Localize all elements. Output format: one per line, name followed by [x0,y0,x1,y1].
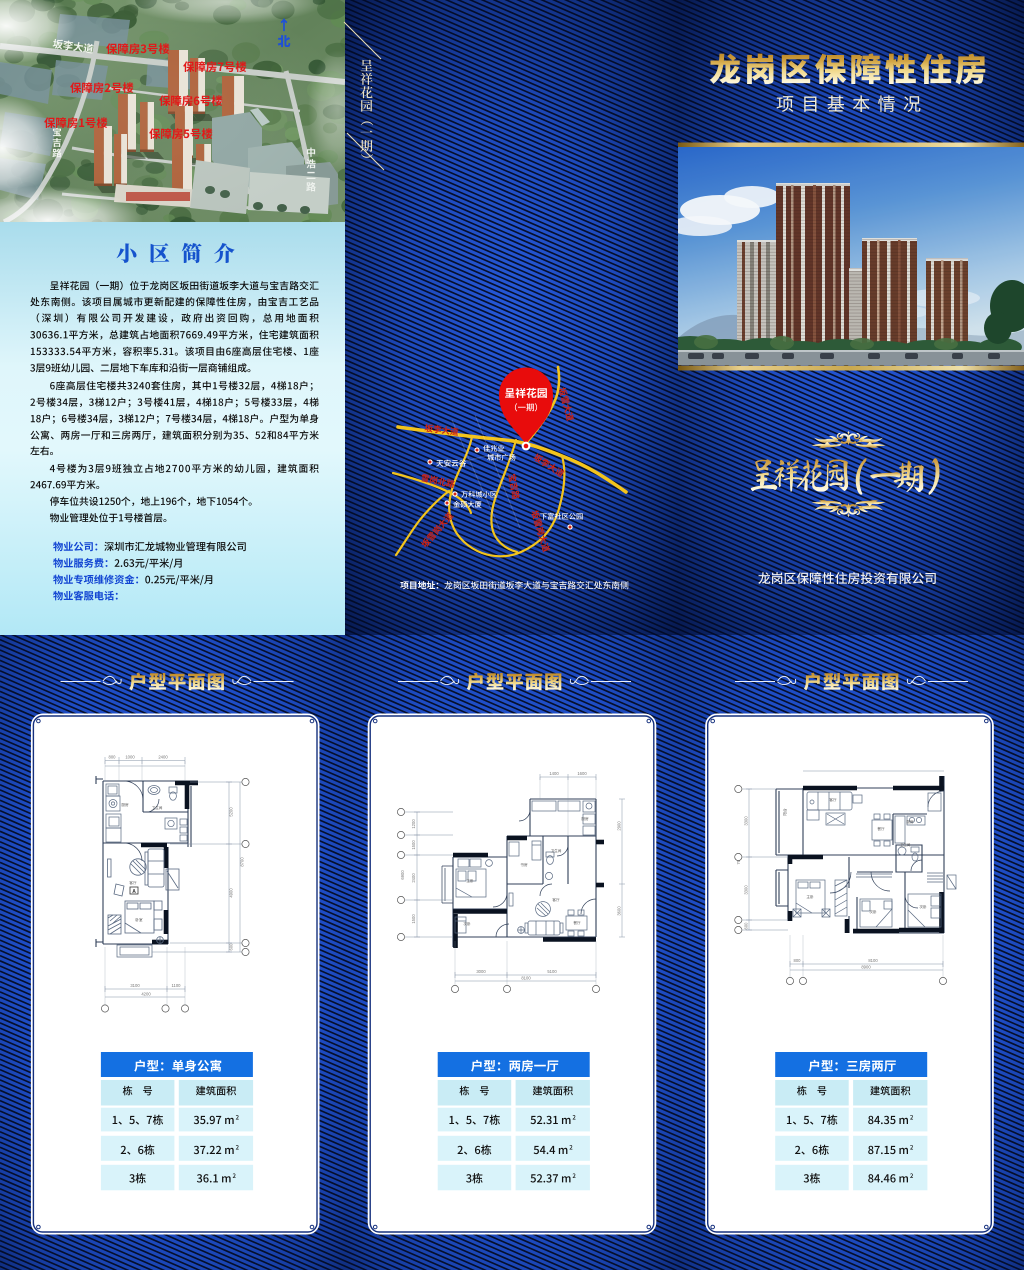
svg-text:4900: 4900 [229,888,234,898]
svg-text:1100: 1100 [171,983,181,988]
svg-text:客厅: 客厅 [129,880,137,885]
svg-text:主卧: 主卧 [466,878,474,883]
svg-text:600: 600 [229,943,234,951]
svg-text:A: A [132,889,136,895]
svg-text:客厅: 客厅 [829,797,837,802]
svg-text:3300: 3300 [744,885,749,895]
svg-text:次卧: 次卧 [463,921,471,926]
svg-text:3600: 3600 [617,906,622,916]
svg-text:600: 600 [744,922,749,930]
svg-text:1200: 1200 [411,819,416,829]
svg-text:3000: 3000 [476,969,486,974]
svg-text:卫生间: 卫生间 [551,848,562,853]
svg-text:餐厅: 餐厅 [877,826,885,831]
svg-text:6900: 6900 [400,870,405,880]
svg-text:次卧: 次卧 [919,904,927,909]
svg-text:书房: 书房 [520,862,528,867]
svg-text:8900: 8900 [861,965,871,970]
svg-text:厨房: 厨房 [581,816,589,821]
svg-text:4200: 4200 [141,992,151,997]
svg-text:8700: 8700 [240,857,245,867]
svg-text:厨房: 厨房 [121,802,129,807]
svg-text:次卧: 次卧 [869,909,877,914]
svg-text:3100: 3100 [130,983,140,988]
svg-text:1600: 1600 [577,771,587,776]
svg-text:2400: 2400 [411,873,416,883]
svg-text:卫生间: 卫生间 [152,805,163,810]
svg-text:5100: 5100 [547,969,557,974]
svg-text:8100: 8100 [521,976,531,981]
svg-text:5200: 5200 [229,807,234,817]
svg-text:1500: 1500 [411,914,416,924]
svg-text:2900: 2900 [617,821,622,831]
svg-text:卫生间: 卫生间 [900,842,911,847]
svg-text:1000: 1000 [125,755,135,760]
svg-text:阳台: 阳台 [782,808,787,816]
svg-text:厨房: 厨房 [906,819,914,824]
svg-text:800: 800 [109,755,117,760]
svg-text:餐厅: 餐厅 [573,920,581,925]
svg-text:800: 800 [794,958,802,963]
svg-text:主卧: 主卧 [806,894,814,899]
svg-text:客厅: 客厅 [552,897,560,902]
svg-text:卧室: 卧室 [135,917,143,922]
svg-text:3300: 3300 [744,816,749,826]
svg-text:1400: 1400 [549,771,559,776]
svg-text:1500: 1500 [411,840,416,850]
svg-text:8100: 8100 [868,958,878,963]
svg-text:2400: 2400 [158,755,168,760]
